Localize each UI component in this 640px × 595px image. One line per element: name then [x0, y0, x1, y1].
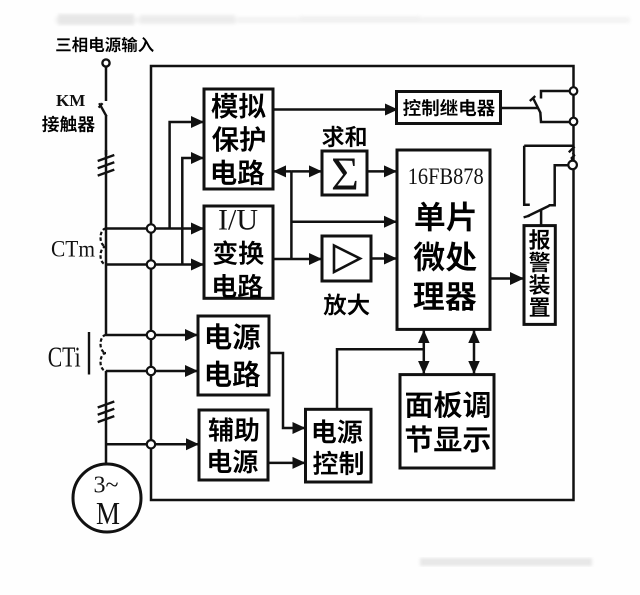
svg-text:I/U: I/U [218, 203, 258, 236]
svg-text:16FB878: 16FB878 [408, 164, 484, 189]
svg-text:M: M [96, 495, 120, 531]
svg-text:CTi: CTi [48, 343, 81, 374]
svg-text:Σ: Σ [331, 148, 359, 201]
svg-text:KM: KM [56, 91, 85, 110]
svg-text:CTm: CTm [51, 237, 95, 262]
